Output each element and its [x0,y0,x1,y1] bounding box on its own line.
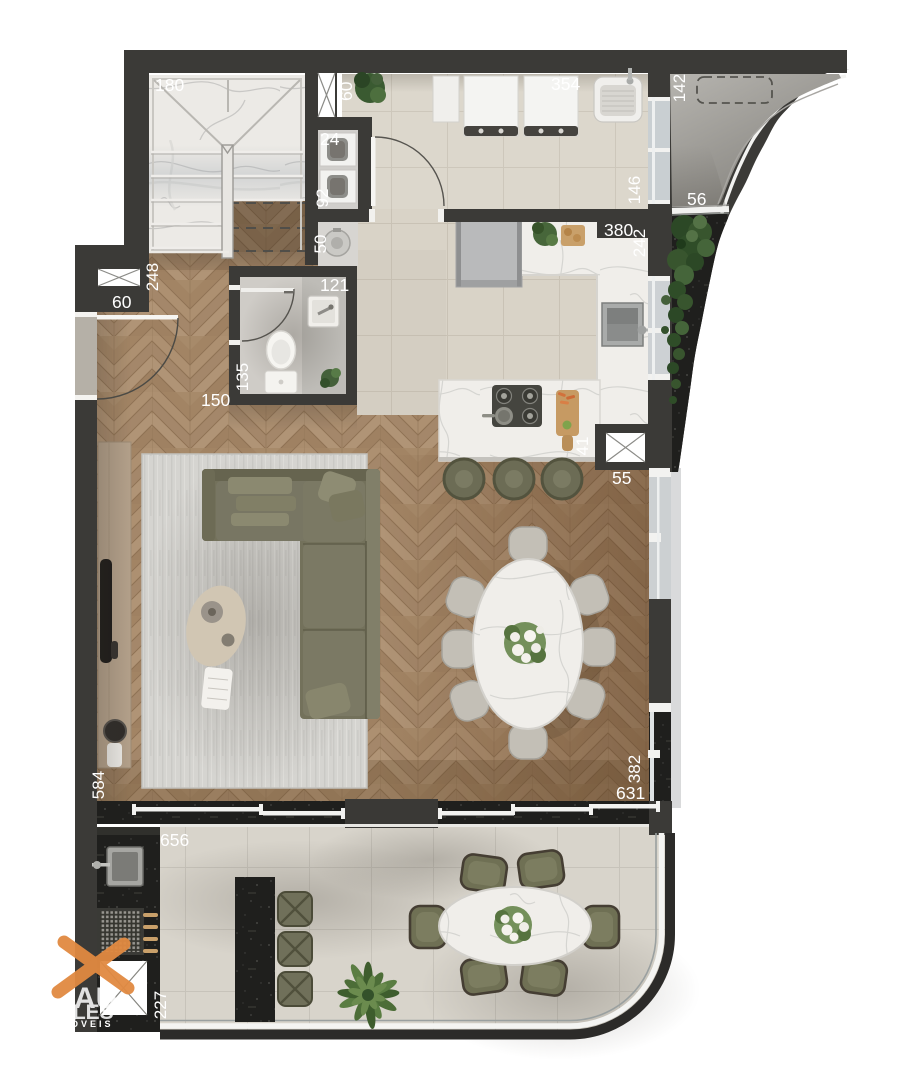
svg-text:135: 135 [233,363,252,391]
svg-text:146: 146 [625,176,644,204]
svg-text:142: 142 [670,74,689,102]
svg-text:584: 584 [89,771,108,799]
svg-text:227: 227 [151,991,170,1019]
svg-text:60: 60 [336,81,356,101]
svg-text:180: 180 [155,75,184,95]
svg-text:55: 55 [612,468,631,488]
svg-text:41: 41 [573,437,592,456]
svg-text:248: 248 [143,263,162,291]
svg-text:IMÓVEIS: IMÓVEIS [55,1018,114,1029]
svg-text:354: 354 [551,74,580,94]
svg-text:56: 56 [687,189,706,209]
svg-text:242: 242 [630,229,649,257]
svg-text:60: 60 [112,292,132,312]
svg-text:631: 631 [616,783,645,803]
svg-text:50: 50 [311,235,330,254]
svg-text:24: 24 [320,129,340,149]
svg-text:121: 121 [320,275,349,295]
svg-text:92: 92 [313,189,332,208]
svg-text:656: 656 [160,830,189,850]
svg-text:382: 382 [625,755,644,783]
svg-text:150: 150 [201,390,230,410]
